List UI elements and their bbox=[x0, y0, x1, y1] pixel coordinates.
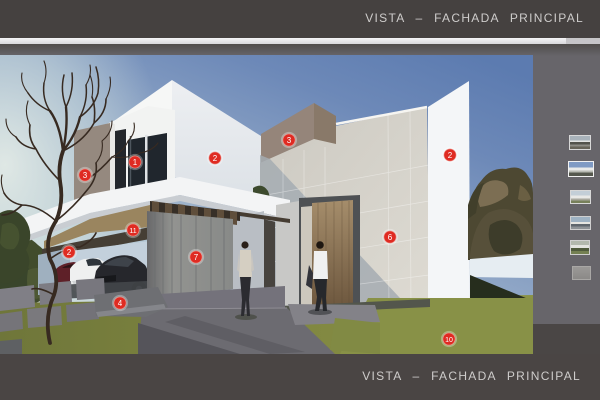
svg-text:7: 7 bbox=[194, 253, 199, 262]
svg-text:2: 2 bbox=[213, 154, 218, 163]
svg-text:3: 3 bbox=[83, 171, 88, 180]
svg-text:3: 3 bbox=[287, 136, 292, 145]
svg-text:2: 2 bbox=[67, 248, 72, 257]
svg-text:11: 11 bbox=[129, 228, 136, 235]
svg-text:2: 2 bbox=[448, 151, 453, 160]
svg-text:6: 6 bbox=[388, 233, 393, 242]
svg-text:1: 1 bbox=[133, 158, 138, 167]
svg-text:4: 4 bbox=[118, 299, 123, 308]
svg-text:10: 10 bbox=[445, 337, 453, 344]
